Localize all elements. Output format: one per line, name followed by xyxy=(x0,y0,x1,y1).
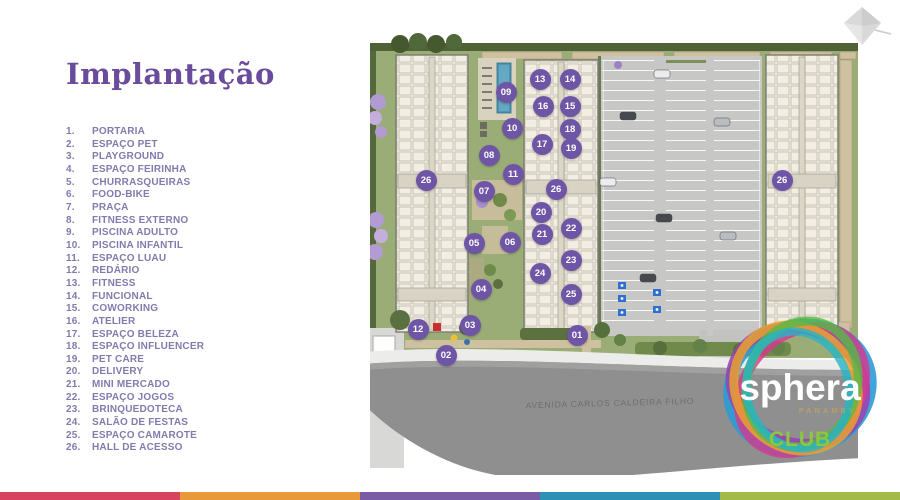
map-marker-03: 03 xyxy=(460,315,481,336)
map-marker-05: 05 xyxy=(464,233,485,254)
stripe-segment xyxy=(180,492,360,500)
sphera-club-logo: sphera PANAMBY CLUB xyxy=(712,296,890,480)
legend-item-label: BRINQUEDOTECA xyxy=(92,404,183,417)
map-marker-15: 15 xyxy=(560,96,581,117)
map-marker-26: 26 xyxy=(546,179,567,200)
legend-item-label: MINI MERCADO xyxy=(92,379,170,392)
legend-item: 11.ESPAÇO LUAU xyxy=(66,253,316,266)
map-marker-22: 22 xyxy=(561,218,582,239)
tower-right xyxy=(766,55,838,332)
legend-item: 6.FOOD-BIKE xyxy=(66,189,316,202)
sphera-wordmark: sphera xyxy=(739,367,861,408)
legend-item-number: 16. xyxy=(66,316,92,329)
legend-item-label: PISCINA INFANTIL xyxy=(92,240,183,253)
legend-item: 2.ESPAÇO PET xyxy=(66,139,316,152)
map-marker-10: 10 xyxy=(502,118,523,139)
legend-item-number: 11. xyxy=(66,253,92,266)
tower-left xyxy=(396,55,468,332)
legend-item-label: PLAYGROUND xyxy=(92,151,164,164)
legend-item-number: 15. xyxy=(66,303,92,316)
legend-item-label: COWORKING xyxy=(92,303,158,316)
legend-item-number: 12. xyxy=(66,265,92,278)
legend-item: 18.ESPAÇO INFLUENCER xyxy=(66,341,316,354)
map-marker-02: 02 xyxy=(436,345,457,366)
legend-item: 24.SALÃO DE FESTAS xyxy=(66,417,316,430)
page-title: Implantação xyxy=(66,57,275,91)
map-marker-04: 04 xyxy=(471,279,492,300)
legend-item: 23.BRINQUEDOTECA xyxy=(66,404,316,417)
map-marker-07: 07 xyxy=(474,181,495,202)
legend-item-number: 24. xyxy=(66,417,92,430)
legend-item-number: 2. xyxy=(66,139,92,152)
panamby-label: PANAMBY xyxy=(799,408,857,415)
legend-item-label: HALL DE ACESSO xyxy=(92,442,183,455)
legend-item: 22.ESPAÇO JOGOS xyxy=(66,392,316,405)
legend-item: 19.PET CARE xyxy=(66,354,316,367)
map-marker-08: 08 xyxy=(479,145,500,166)
legend-item: 8.FITNESS EXTERNO xyxy=(66,215,316,228)
legend-item-number: 3. xyxy=(66,151,92,164)
map-marker-18: 18 xyxy=(560,119,581,140)
legend-item-number: 13. xyxy=(66,278,92,291)
legend-item: 17.ESPAÇO BELEZA xyxy=(66,329,316,342)
legend-item: 13.FITNESS xyxy=(66,278,316,291)
legend-item-label: ATELIER xyxy=(92,316,135,329)
legend-item-number: 6. xyxy=(66,189,92,202)
legend-item-number: 7. xyxy=(66,202,92,215)
legend-item: 9.PISCINA ADULTO xyxy=(66,227,316,240)
legend-item-label: FUNCIONAL xyxy=(92,291,153,304)
legend-item-number: 10. xyxy=(66,240,92,253)
map-marker-13: 13 xyxy=(530,69,551,90)
map-marker-06: 06 xyxy=(500,232,521,253)
legend-item-label: ESPAÇO FEIRINHA xyxy=(92,164,187,177)
legend-item-label: FITNESS EXTERNO xyxy=(92,215,188,228)
legend-item: 5.CHURRASQUEIRAS xyxy=(66,177,316,190)
legend-item-label: FITNESS xyxy=(92,278,136,291)
map-marker-26: 26 xyxy=(416,170,437,191)
map-marker-26: 26 xyxy=(772,170,793,191)
legend-item: 26.HALL DE ACESSO xyxy=(66,442,316,455)
club-label: CLUB xyxy=(769,428,831,451)
map-marker-11: 11 xyxy=(503,164,524,185)
legend-item-label: PRAÇA xyxy=(92,202,129,215)
sphera-rings-icon: sphera PANAMBY CLUB xyxy=(712,296,890,480)
legend-item-number: 26. xyxy=(66,442,92,455)
map-marker-23: 23 xyxy=(561,250,582,271)
legend-item-label: DELIVERY xyxy=(92,366,143,379)
legend-item-number: 9. xyxy=(66,227,92,240)
map-marker-16: 16 xyxy=(533,96,554,117)
legend-item: 1.PORTARIA xyxy=(66,126,316,139)
stripe-segment xyxy=(720,492,900,500)
developer-diamond-icon xyxy=(835,4,893,52)
footer-color-stripe xyxy=(0,492,900,500)
legend-item-number: 14. xyxy=(66,291,92,304)
legend-item-number: 18. xyxy=(66,341,92,354)
map-marker-14: 14 xyxy=(560,69,581,90)
legend-item-label: ESPAÇO PET xyxy=(92,139,158,152)
legend-item-number: 25. xyxy=(66,430,92,443)
legend-item-label: REDÁRIO xyxy=(92,265,140,278)
map-marker-12: 12 xyxy=(408,319,429,340)
legend-item: 14.FUNCIONAL xyxy=(66,291,316,304)
legend-list: 1.PORTARIA2.ESPAÇO PET3.PLAYGROUND4.ESPA… xyxy=(66,126,316,455)
legend-item: 20.DELIVERY xyxy=(66,366,316,379)
legend-item-label: PISCINA ADULTO xyxy=(92,227,178,240)
legend-item: 7.PRAÇA xyxy=(66,202,316,215)
stripe-segment xyxy=(360,492,540,500)
map-marker-01: 01 xyxy=(567,325,588,346)
legend-item-label: PET CARE xyxy=(92,354,144,367)
legend-item-label: FOOD-BIKE xyxy=(92,189,150,202)
legend-item: 25.ESPAÇO CAMAROTE xyxy=(66,430,316,443)
map-marker-21: 21 xyxy=(532,224,553,245)
legend-item-number: 19. xyxy=(66,354,92,367)
legend-item-label: ESPAÇO LUAU xyxy=(92,253,166,266)
legend-item-number: 5. xyxy=(66,177,92,190)
legend-item-number: 4. xyxy=(66,164,92,177)
legend-item: 3.PLAYGROUND xyxy=(66,151,316,164)
legend-item: 12.REDÁRIO xyxy=(66,265,316,278)
legend-item-number: 1. xyxy=(66,126,92,139)
legend-item-label: ESPAÇO BELEZA xyxy=(92,329,179,342)
legend-item-number: 17. xyxy=(66,329,92,342)
legend-item: 16.ATELIER xyxy=(66,316,316,329)
legend-item-label: ESPAÇO JOGOS xyxy=(92,392,174,405)
map-marker-17: 17 xyxy=(532,134,553,155)
map-marker-20: 20 xyxy=(531,202,552,223)
legend-item-label: CHURRASQUEIRAS xyxy=(92,177,190,190)
map-marker-19: 19 xyxy=(561,138,582,159)
legend-item-number: 21. xyxy=(66,379,92,392)
map-marker-24: 24 xyxy=(530,263,551,284)
legend-item-number: 23. xyxy=(66,404,92,417)
legend-item: 4.ESPAÇO FEIRINHA xyxy=(66,164,316,177)
legend-item: 15.COWORKING xyxy=(66,303,316,316)
map-marker-25: 25 xyxy=(561,284,582,305)
legend-item: 10.PISCINA INFANTIL xyxy=(66,240,316,253)
stripe-segment xyxy=(540,492,720,500)
legend-item-number: 20. xyxy=(66,366,92,379)
map-marker-09: 09 xyxy=(496,82,517,103)
stripe-segment xyxy=(0,492,180,500)
legend-item-label: ESPAÇO CAMAROTE xyxy=(92,430,197,443)
legend-item: 21.MINI MERCADO xyxy=(66,379,316,392)
legend-item-label: PORTARIA xyxy=(92,126,145,139)
legend-item-label: SALÃO DE FESTAS xyxy=(92,417,188,430)
legend-item-number: 22. xyxy=(66,392,92,405)
legend-item-number: 8. xyxy=(66,215,92,228)
legend-item-label: ESPAÇO INFLUENCER xyxy=(92,341,204,354)
